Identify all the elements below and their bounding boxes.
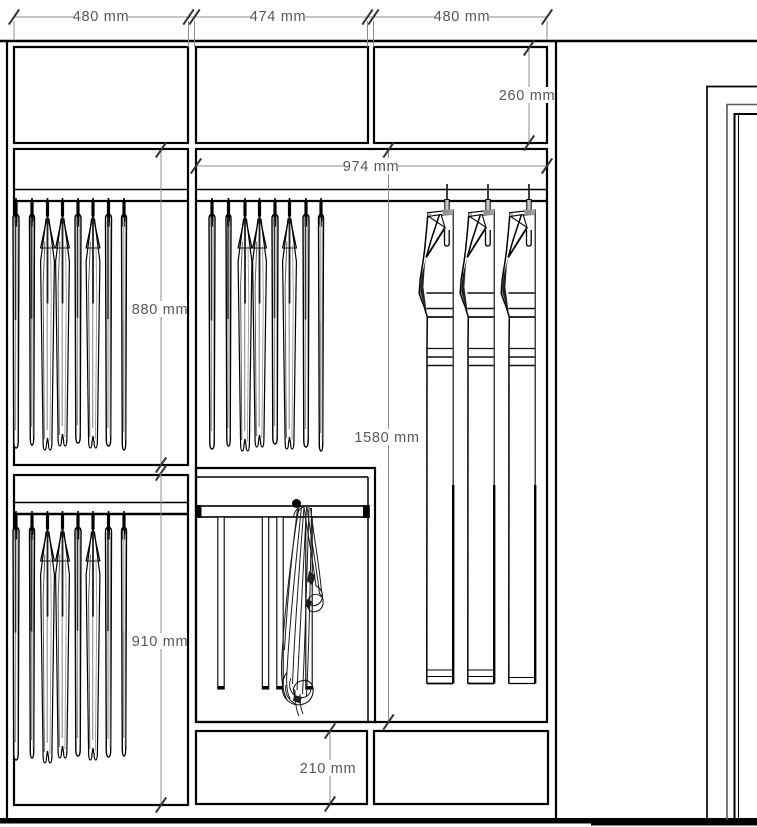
svg-text:480 mm: 480 mm	[73, 9, 130, 25]
svg-text:974 mm: 974 mm	[343, 159, 400, 175]
svg-text:474 mm: 474 mm	[250, 9, 307, 25]
svg-text:880 mm: 880 mm	[132, 302, 189, 318]
svg-text:480 mm: 480 mm	[434, 9, 491, 25]
svg-text:910 mm: 910 mm	[132, 634, 189, 650]
svg-text:210 mm: 210 mm	[300, 761, 357, 777]
svg-text:260 mm: 260 mm	[499, 88, 556, 104]
svg-text:1580 mm: 1580 mm	[354, 430, 419, 446]
